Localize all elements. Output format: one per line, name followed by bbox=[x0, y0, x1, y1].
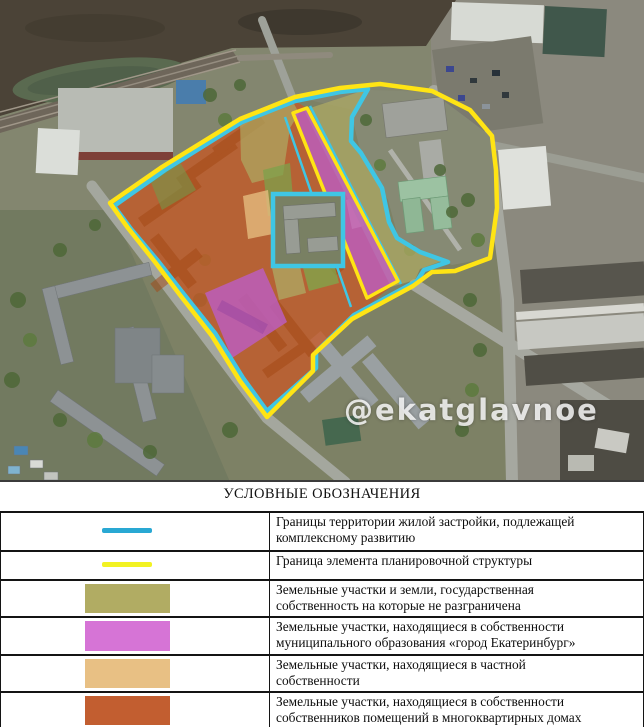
legend-swatch-cyan-line bbox=[102, 528, 152, 533]
legend-row: Граница элемента планировочной структуры bbox=[1, 550, 643, 579]
legend-swatch-olive bbox=[85, 584, 170, 613]
legend-title: УСЛОВНЫЕ ОБОЗНАЧЕНИЯ bbox=[0, 486, 644, 503]
legend-row-label: Земельные участки, находящиеся в частной… bbox=[270, 656, 643, 691]
legend-swatch-orange bbox=[85, 696, 170, 725]
legend-row-label: Границы территории жилой застройки, подл… bbox=[270, 513, 643, 550]
excluded-block bbox=[273, 194, 343, 266]
legend-swatch-tan bbox=[85, 659, 170, 688]
legend-row-label: Земельные участки, находящиеся в собстве… bbox=[270, 618, 643, 654]
legend-swatch-purple bbox=[85, 621, 170, 651]
legend-row: Земельные участки, находящиеся в частной… bbox=[1, 654, 643, 691]
overlay-private-tan bbox=[243, 190, 273, 239]
satellite-map: @ekatglavnoe bbox=[0, 0, 644, 482]
legend: Границы территории жилой застройки, подл… bbox=[0, 511, 644, 727]
legend-row: Земельные участки, находящиеся в собстве… bbox=[1, 691, 643, 727]
land-development-infographic: @ekatglavnoe УСЛОВНЫЕ ОБОЗНАЧЕНИЯ Границ… bbox=[0, 0, 644, 727]
legend-row: Земельные участки, находящиеся в собстве… bbox=[1, 616, 643, 654]
legend-row: Границы территории жилой застройки, подл… bbox=[1, 511, 643, 550]
legend-swatch-yellow-line bbox=[102, 562, 152, 567]
legend-row-label: Земельные участки, находящиеся в собстве… bbox=[270, 693, 643, 727]
blue-roof-building bbox=[176, 80, 206, 104]
map-graphic bbox=[0, 0, 644, 482]
legend-row-label: Земельные участки и земли, государственн… bbox=[270, 581, 643, 616]
legend-row: Земельные участки и земли, государственн… bbox=[1, 579, 643, 616]
legend-row-label: Граница элемента планировочной структуры bbox=[270, 552, 643, 579]
